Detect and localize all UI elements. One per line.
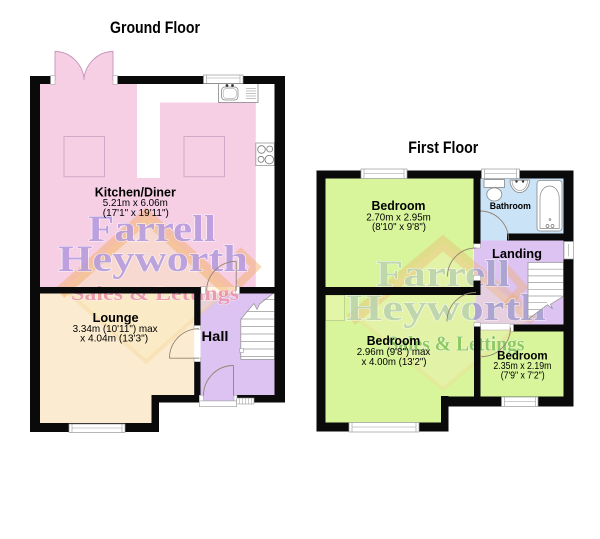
svg-text:Bedroom: Bedroom xyxy=(372,199,426,213)
svg-text:Kitchen/Diner: Kitchen/Diner xyxy=(95,184,176,199)
svg-text:Heyworth: Heyworth xyxy=(58,238,248,279)
svg-text:Bedroom: Bedroom xyxy=(367,334,421,348)
svg-text:Hall: Hall xyxy=(202,329,229,344)
svg-text:Sales & Lettings: Sales & Lettings xyxy=(71,283,239,305)
svg-text:Bathroom: Bathroom xyxy=(490,201,531,211)
svg-text:Ground Floor: Ground Floor xyxy=(110,19,200,37)
svg-text:Landing: Landing xyxy=(492,246,542,261)
svg-text:x 4.04m (13'3"): x 4.04m (13'3") xyxy=(80,334,148,345)
svg-text:First Floor: First Floor xyxy=(408,139,478,157)
svg-text:(8'10" x 9'8"): (8'10" x 9'8") xyxy=(372,222,426,233)
svg-text:Lounge: Lounge xyxy=(93,310,139,325)
svg-text:(7'9" x 7'2"): (7'9" x 7'2") xyxy=(501,371,545,382)
svg-text:(17'1" x 19'11"): (17'1" x 19'11") xyxy=(103,208,169,219)
svg-text:x 4.00m (13'2"): x 4.00m (13'2") xyxy=(362,357,427,368)
